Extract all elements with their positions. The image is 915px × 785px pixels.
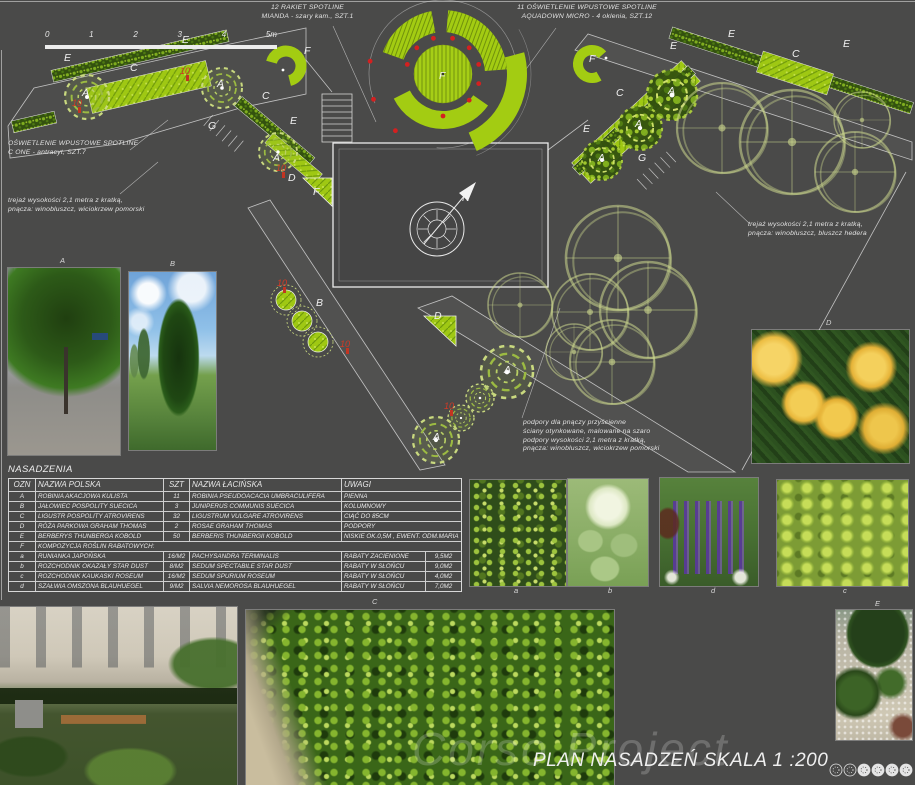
table-cell: ROZCHODNIK OKAZAŁY STAR DUST (35, 561, 163, 571)
table-cell: D (9, 521, 35, 531)
table-cell: 7,0M2 (425, 581, 461, 591)
plan-label: A (634, 118, 642, 130)
table-cell: 9,0M2 (425, 561, 461, 571)
table-cell: ROBINIA AKACJOWA KULISTA (35, 491, 163, 501)
scale-tick: 4 (222, 30, 226, 39)
table-cell: SEDUM SPURIUM ROSEUM (189, 571, 341, 581)
plan-dimension-label: 10 (276, 163, 286, 173)
table-cell: SEDUM SPECTABILE STAR DUST (189, 561, 341, 571)
table-cell: LIGUSTRUM VULGARE ATROVIRENS (189, 511, 341, 521)
table-cell: ROSAE GRAHAM THOMAS (189, 521, 341, 531)
plan-label: A (216, 78, 224, 90)
annotation-trellis-left: trejaż wysokości 2,1 metra z kratką, pną… (8, 197, 218, 215)
table-cell: JAŁOWIEC POSPOLITY SUECICA (35, 501, 163, 511)
table-cell: RABATY ZACIENIONE (341, 551, 425, 561)
photo-courtyard (0, 607, 237, 785)
table-row: dSZAŁWIA OMSZONA BLAUHUEGEL9/M2SALVIA NE… (9, 581, 461, 591)
table-cell: ROZCHODNIK KAUKASKI ROSEUM (35, 571, 163, 581)
table-cell: BERBERYS THUNBERGA KOBOLD (35, 531, 163, 541)
table-cell: 16/M2 (163, 571, 189, 581)
plan-label: C (262, 90, 270, 102)
table-cell: a (9, 551, 35, 561)
photo-sedum-spectabile (568, 479, 648, 586)
plan-label: E (64, 52, 72, 64)
table-cell: RABATY W SŁOŃCU (341, 571, 425, 581)
photo-label-d: d (711, 586, 715, 595)
photo-label-B: B (170, 259, 175, 268)
table-header-row: OZN NAZWA POLSKA SZT NAZWA ŁACIŃSKA UWAG… (9, 479, 461, 491)
logo-tree-icons (828, 757, 914, 783)
photo-label-C: C (372, 597, 377, 606)
table-cell: PIENNA (341, 491, 461, 501)
table-row: AROBINIA AKACJOWA KULISTA11ROBINIA PSEUD… (9, 491, 461, 501)
planting-table-section: NASADZENIA OZN NAZWA POLSKA SZT NAZWA ŁA… (8, 464, 462, 592)
table-cell: 11 (163, 491, 189, 501)
plan-label: C (616, 87, 624, 99)
table-row: bROZCHODNIK OKAZAŁY STAR DUST8/M2SEDUM S… (9, 561, 461, 571)
table-cell: 9/M2 (163, 581, 189, 591)
plan-label: E (670, 40, 678, 52)
table-cell: 16/M2 (163, 551, 189, 561)
building (333, 143, 548, 287)
photo-pachysandra (470, 480, 566, 586)
plan-label: G (638, 152, 646, 164)
plan-label: C (130, 62, 138, 74)
plan-label: N (462, 192, 470, 204)
table-cell: PODPORY (341, 521, 461, 531)
plan-label: A (81, 87, 89, 99)
plan-label: G (208, 120, 216, 132)
table-row: cROZCHODNIK KAUKASKI ROSEUM16/M2SEDUM SP… (9, 571, 461, 581)
plan-dimension-label: 10 (72, 98, 82, 108)
annotation-cone: OŚWIETLENIE WPUSTOWE SPOTLINE C ONE - an… (8, 140, 178, 158)
scale-bar-line (45, 45, 277, 49)
table-cell: RUNIANKA JAPOŃSKA (35, 551, 163, 561)
plan-dimension-label: 10 (444, 401, 454, 411)
table-cell: c (9, 571, 35, 581)
stairs (322, 94, 352, 142)
table-cell: ROBINIA PSEUDOACACIA UMBRACULIFERA (189, 491, 341, 501)
photo-robinia-tree (8, 268, 120, 455)
annotation-aquadown: 11 OŚWIETLENIE WPUSTOWE SPOTLINE AQUADOW… (462, 4, 712, 22)
table-row: CLIGUSTR POSPOLITY ATROVIRENS32LIGUSTRUM… (9, 511, 461, 521)
table-cell: C (9, 511, 35, 521)
plan-label: C (792, 48, 800, 60)
photo-juniper-column (129, 272, 216, 450)
scale-bar: 012345m (45, 30, 277, 49)
table-cell: JUNIPERUS COMMUNIS SUECICA (189, 501, 341, 511)
annotation-wall-supports: podpory dla pnączy przyścienne ściany ot… (523, 419, 738, 454)
table-header-cell: SZT (163, 479, 189, 491)
photo-label-b: b (608, 586, 612, 595)
table-row: aRUNIANKA JAPOŃSKA16/M2PACHYSANDRA TERMI… (9, 551, 461, 561)
plan-label: D (288, 172, 296, 184)
plan-label: A (432, 431, 440, 443)
scale-tick: 1 (89, 30, 93, 39)
plan-label: A (597, 152, 605, 164)
plan-label: F (439, 70, 446, 82)
scale-tick: 3 (178, 30, 182, 39)
table-cell: b (9, 561, 35, 571)
table-cell: KOLUMNOWY (341, 501, 461, 511)
plan-label: B (316, 297, 323, 309)
scale-bar-ticks: 012345m (45, 30, 277, 39)
table-row: BJAŁOWIEC POSPOLITY SUECICA3JUNIPERUS CO… (9, 501, 461, 511)
table-cell: SZAŁWIA OMSZONA BLAUHUEGEL (35, 581, 163, 591)
table-row: FKOMPOZYCJA ROŚLIN RABATOWYCH: (9, 541, 461, 551)
plan-dimension-label: 10 (180, 66, 190, 76)
table-header-cell: OZN (9, 479, 35, 491)
planting-plan-sheet: EECAAGCEADFFFFEECECAAEAGBDAAN10101010101… (0, 0, 915, 785)
scale-tick: 0 (45, 30, 49, 39)
photo-label-E: E (875, 599, 880, 608)
table-cell: RÓŻA PARKOWA GRAHAM THOMAS (35, 521, 163, 531)
table-cell: 3 (163, 501, 189, 511)
table-cell: CIĄĆ DO 85CM (341, 511, 461, 521)
table-cell: SALVIA NEMOROSA BLAUHUEGEL (189, 581, 341, 591)
annotation-trellis-right: trejaż wysokości 2,1 metra z kratką, pną… (748, 221, 915, 239)
photo-label-c: c (843, 586, 847, 595)
plan-label: E (728, 28, 736, 40)
table-cell: 9,5M2 (425, 551, 461, 561)
plan-label: F (304, 45, 311, 57)
table-cell: F (9, 541, 35, 551)
plan-label: E (843, 38, 851, 50)
photo-label-a: a (514, 586, 518, 595)
table-title: NASADZENIA (8, 464, 462, 475)
photo-label-D: D (826, 318, 831, 327)
table-cell: RABATY W SŁOŃCU (341, 581, 425, 591)
table-cell: E (9, 531, 35, 541)
table-cell: B (9, 501, 35, 511)
table-row: DRÓŻA PARKOWA GRAHAM THOMAS2ROSAE GRAHAM… (9, 521, 461, 531)
table-cell: d (9, 581, 35, 591)
plan-dimension-label: 10 (340, 339, 350, 349)
plan-label: A (503, 364, 511, 376)
plan-label: F (589, 53, 596, 65)
photo-yellow-roses (752, 330, 909, 463)
table-cell: LIGUSTR POSPOLITY ATROVIRENS (35, 511, 163, 521)
table-header-cell: UWAGI (341, 479, 461, 491)
table-row: EBERBERYS THUNBERGA KOBOLD50BERBERIS THU… (9, 531, 461, 541)
planting-table: OZN NAZWA POLSKA SZT NAZWA ŁACIŃSKA UWAG… (8, 478, 462, 592)
table-cell: BERBERIS THUNBERGII KOBOLD (189, 531, 341, 541)
sheet-title: PLAN NASADZEŃ SKALA 1 :200 (533, 750, 828, 772)
table-cell: A (9, 491, 35, 501)
scale-tick: 5m (266, 30, 277, 39)
table-cell: 4,0M2 (425, 571, 461, 581)
table-cell: PACHYSANDRA TERMINALIS (189, 551, 341, 561)
photo-sedum-spurium (777, 480, 908, 586)
plan-label: D (434, 310, 442, 322)
table-cell: KOMPOZYCJA ROŚLIN RABATOWYCH: (35, 541, 461, 551)
table-header-cell: NAZWA POLSKA (35, 479, 163, 491)
table-cell: RABATY W SŁOŃCU (341, 561, 425, 571)
plan-label: A (667, 85, 675, 97)
photo-berberis-balls (836, 610, 912, 740)
plan-label: F (313, 186, 320, 198)
table-cell: 32 (163, 511, 189, 521)
photo-label-A: A (60, 256, 65, 265)
plan-label: E (583, 123, 591, 135)
table-cell: 8/M2 (163, 561, 189, 571)
scale-tick: 2 (133, 30, 137, 39)
plan-label: E (290, 115, 298, 127)
annotation-spotline-mianda: 12 RAKIET SPOTLINE MIANDA - szary kam., … (225, 4, 390, 22)
table-cell: 50 (163, 531, 189, 541)
photo-salvia (660, 478, 758, 586)
table-cell: NISKIE OK.0,5M , EWENT. ODM.MARIA (341, 531, 461, 541)
table-cell: 2 (163, 521, 189, 531)
plan-dimension-label: 10 (277, 278, 287, 288)
table-header-cell: NAZWA ŁACIŃSKA (189, 479, 341, 491)
